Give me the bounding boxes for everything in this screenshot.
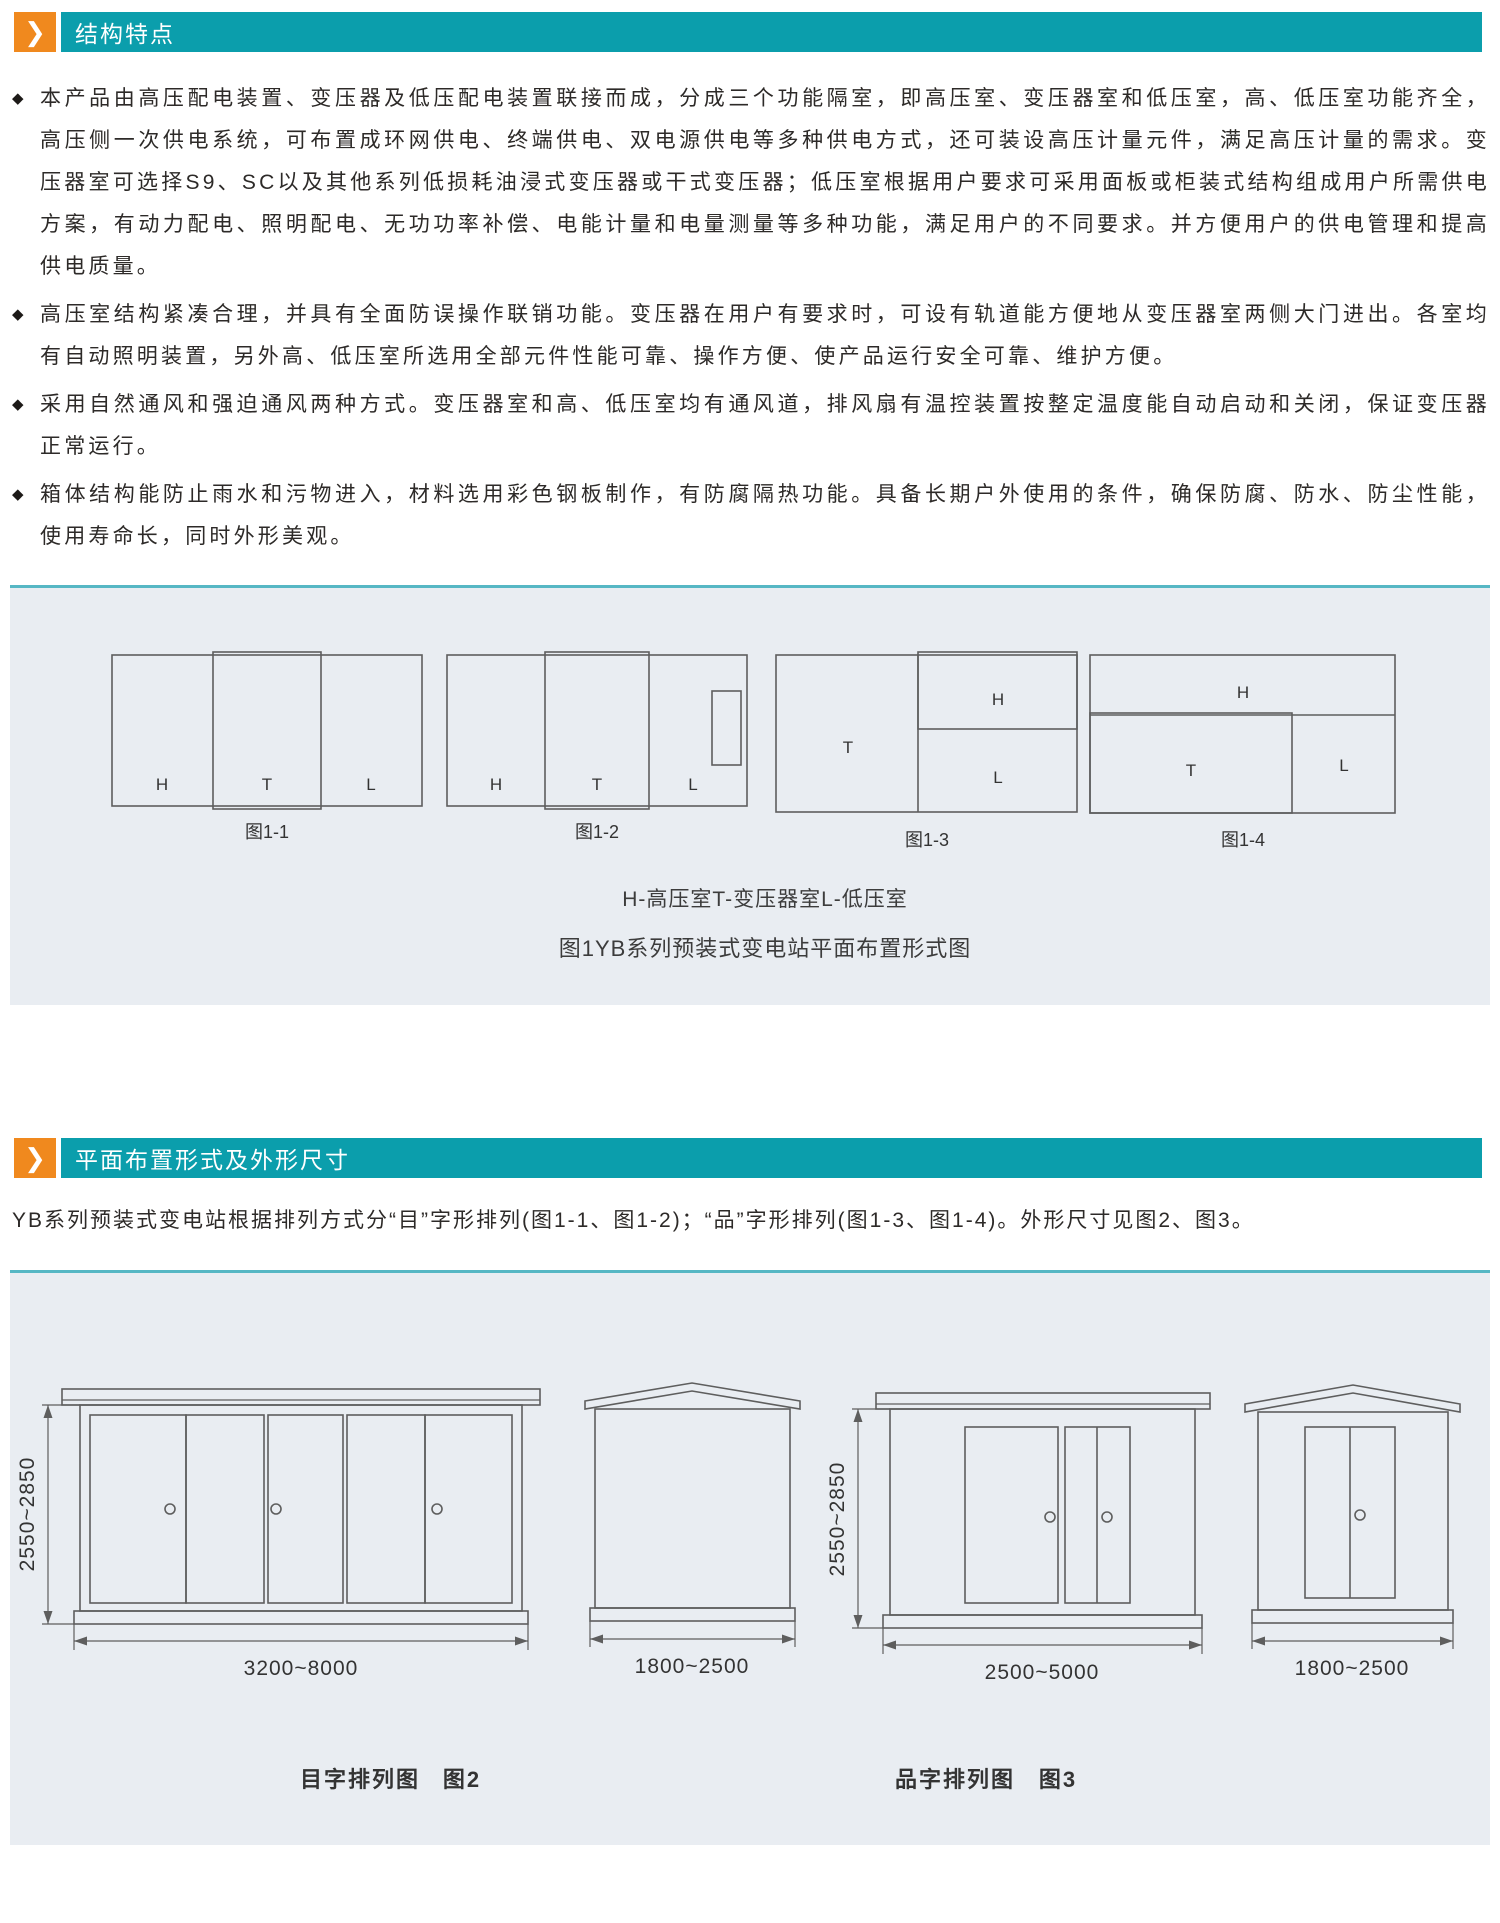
room-label-h: H — [1237, 683, 1249, 702]
fig3-side-width-label: 1800~2500 — [1295, 1657, 1410, 1680]
room-label-h: H — [992, 690, 1004, 709]
door-handle — [271, 1504, 281, 1514]
fig2-side-body — [595, 1409, 790, 1608]
room-label-h: H — [490, 775, 502, 794]
fig1-2-caption: 图1-2 — [575, 822, 619, 842]
diamond-bullet-icon: ◆ — [12, 474, 24, 516]
feature-text: 箱体结构能防止雨水和污物进入，材料选用彩色钢板制作，有防腐隔热功能。具备长期户外… — [40, 474, 1490, 558]
fig2-side-elevation: 1800~2500 — [585, 1383, 800, 1678]
feature-item: ◆ 本产品由高压配电装置、变压器及低压配电装置联接而成，分成三个功能隔室，即高压… — [12, 78, 1490, 288]
arrangement-paragraph: YB系列预装式变电站根据排列方式分“目”字形排列(图1-1、图1-2)；“品”字… — [12, 1206, 1490, 1236]
chevron-right-icon: ❯ — [14, 1138, 56, 1178]
fig3-front-elevation — [876, 1393, 1210, 1628]
figure23-drawing: 2550~2850 3200~8000 180 — [10, 1273, 1490, 1845]
fig2-side-width-label: 1800~2500 — [635, 1655, 750, 1678]
figure1-title: 图1YB系列预装式变电站平面布置形式图 — [559, 936, 972, 961]
room-label-l: L — [993, 768, 1002, 787]
fig3-width-dimension: 2500~5000 — [883, 1628, 1202, 1684]
fig2-caption: 目字排列图 — [300, 1767, 420, 1792]
figure1-drawing: H T L 图1-1 H T L 图1-2 T H — [10, 588, 1490, 1005]
feature-list: ◆ 本产品由高压配电装置、变压器及低压配电装置联接而成，分成三个功能隔室，即高压… — [12, 78, 1490, 564]
feature-text: 采用自然通风和强迫通风两种方式。变压器室和高、低压室均有通风道，排风扇有温控装置… — [40, 384, 1490, 468]
fig3-height-dimension: 2550~2850 — [826, 1409, 890, 1628]
feature-text: 高压室结构紧凑合理，并具有全面防误操作联销功能。变压器在用户有要求时，可设有轨道… — [40, 294, 1490, 378]
diamond-bullet-icon: ◆ — [12, 78, 24, 120]
fig1-2-niche-box — [712, 691, 741, 765]
fig3-roof — [876, 1393, 1210, 1409]
section2-title: 平面布置形式及外形尺寸 — [61, 1138, 1482, 1178]
section1-header: ❯ 结构特点 — [14, 12, 1482, 52]
fig3-height-label: 2550~2850 — [826, 1462, 849, 1577]
diamond-bullet-icon: ◆ — [12, 384, 24, 426]
fig2-roof — [62, 1389, 540, 1405]
room-label-l: L — [366, 775, 375, 794]
fig1-1-floorplan: H T L 图1-1 — [112, 652, 422, 842]
section2-header: ❯ 平面布置形式及外形尺寸 — [14, 1138, 1482, 1178]
fig2-door — [186, 1415, 264, 1603]
room-label-t: T — [843, 738, 853, 757]
door-handle — [1045, 1512, 1055, 1522]
fig2-door — [90, 1415, 186, 1603]
figure1-legend: H-高压室T-变压器室L-低压室 — [622, 888, 908, 911]
room-label-t: T — [262, 775, 272, 794]
fig2-height-label: 2550~2850 — [16, 1457, 39, 1572]
fig3-side-body — [1258, 1412, 1448, 1610]
fig1-3-outline — [776, 655, 1077, 812]
feature-item: ◆ 高压室结构紧凑合理，并具有全面防误操作联销功能。变压器在用户有要求时，可设有… — [12, 294, 1490, 378]
fig3-side-base — [1252, 1610, 1453, 1623]
feature-text: 本产品由高压配电装置、变压器及低压配电装置联接而成，分成三个功能隔室，即高压室、… — [40, 78, 1490, 288]
door-handle — [432, 1504, 442, 1514]
room-label-t: T — [1186, 761, 1196, 780]
fig2-caption-number: 图2 — [443, 1767, 481, 1792]
fig1-4-caption: 图1-4 — [1221, 830, 1265, 850]
fig3-body — [890, 1409, 1195, 1615]
fig2-door — [425, 1415, 512, 1603]
fig3-base — [883, 1615, 1202, 1628]
fig1-4-floorplan: H T L 图1-4 — [1090, 655, 1395, 850]
fig1-1-caption: 图1-1 — [245, 822, 289, 842]
feature-item: ◆ 箱体结构能防止雨水和污物进入，材料选用彩色钢板制作，有防腐隔热功能。具备长期… — [12, 474, 1490, 558]
door-handle — [165, 1504, 175, 1514]
fig1-2-floorplan: H T L 图1-2 — [447, 652, 747, 842]
section1-title: 结构特点 — [61, 12, 1482, 52]
fig3-caption: 品字排列图 — [895, 1767, 1015, 1792]
fig3-caption-number: 图3 — [1039, 1767, 1077, 1792]
room-label-l: L — [1339, 756, 1348, 775]
fig2-side-base — [590, 1608, 795, 1621]
fig3-side-roof — [1245, 1385, 1460, 1412]
fig1-3-floorplan: T H L 图1-3 — [776, 652, 1077, 850]
fig2-width-dimension: 3200~8000 — [74, 1624, 528, 1680]
fig2-body — [80, 1405, 522, 1611]
fig2-door — [347, 1415, 425, 1603]
fig3-door — [965, 1427, 1058, 1603]
fig2-front-elevation — [62, 1389, 540, 1624]
fig2-door — [268, 1415, 343, 1603]
door-handle — [1355, 1510, 1365, 1520]
fig3-width-label: 2500~5000 — [985, 1661, 1100, 1684]
fig1-3-caption: 图1-3 — [905, 830, 949, 850]
figure1-panel: H T L 图1-1 H T L 图1-2 T H — [10, 585, 1490, 1005]
fig2-base — [74, 1611, 528, 1624]
feature-item: ◆ 采用自然通风和强迫通风两种方式。变压器室和高、低压室均有通风道，排风扇有温控… — [12, 384, 1490, 468]
diamond-bullet-icon: ◆ — [12, 294, 24, 336]
room-label-t: T — [592, 775, 602, 794]
fig3-side-elevation: 1800~2500 — [1245, 1385, 1460, 1680]
catalog-page: ❯ 结构特点 ◆ 本产品由高压配电装置、变压器及低压配电装置联接而成，分成三个功… — [0, 0, 1500, 1923]
chevron-right-icon: ❯ — [14, 12, 56, 52]
fig1-4-outline — [1090, 655, 1395, 813]
room-label-h: H — [156, 775, 168, 794]
fig2-width-label: 3200~8000 — [244, 1657, 359, 1680]
fig2-side-roof — [585, 1383, 800, 1409]
figure23-panel: 2550~2850 3200~8000 180 — [10, 1270, 1490, 1845]
room-label-l: L — [688, 775, 697, 794]
fig2-height-dimension: 2550~2850 — [16, 1405, 80, 1624]
door-handle — [1102, 1512, 1112, 1522]
